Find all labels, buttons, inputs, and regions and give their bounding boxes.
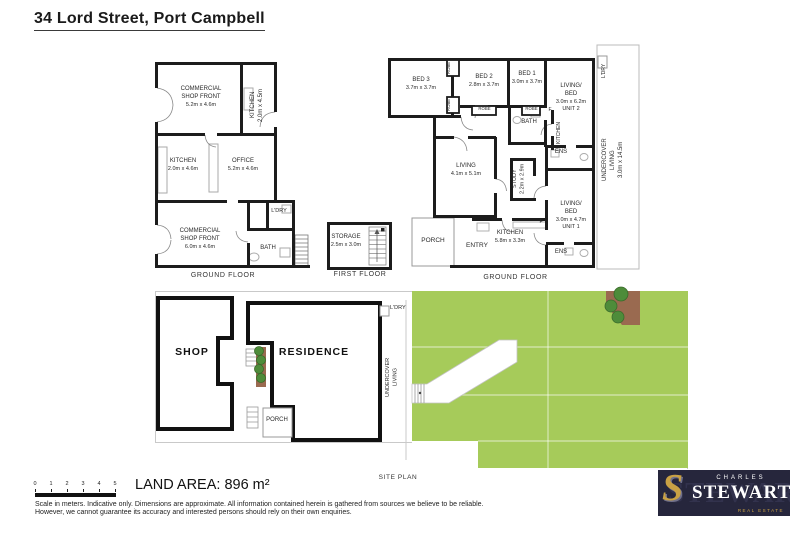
residence-floor-label: GROUND FLOOR <box>468 274 563 281</box>
room-robe-b: ROBE <box>446 97 452 113</box>
land-area: LAND AREA: 896 m² <box>135 477 270 493</box>
room-porch-residence: PORCH <box>415 237 451 244</box>
room-undercover-living: UNDERCOVER LIVING 3.0m x 14.5m <box>601 118 625 202</box>
room-robe-a: ROBE <box>446 60 452 76</box>
room-kitchen-small: KITCHEN <box>556 117 563 149</box>
room-ldry-residence: L'DRY <box>601 58 608 84</box>
scale-tick-4: 4 <box>95 481 103 487</box>
room-living-bed-unit1: LIVING/ BED 3.0m x 4.7m UNIT 1 <box>547 201 595 231</box>
floorplan-sheet: 34 Lord Street, Port Campbell <box>0 0 800 533</box>
room-bath-residence: BATH <box>512 119 546 125</box>
agency-logo: STEWART S CHARLES STEWART REAL ESTATE <box>658 470 790 516</box>
room-storage: STORAGE 2.5m x 3.0m <box>325 234 367 249</box>
room-bath-shop: BATH <box>248 245 288 251</box>
room-bed2: BED 2 2.8m x 3.7m <box>459 74 509 89</box>
shop-floor-label: GROUND FLOOR <box>178 272 268 279</box>
room-commercial-shop-front-1: COMMERCIAL SHOP FRONT 5.2m x 4.6m <box>166 86 236 109</box>
room-living: LIVING 4.1m x 5.1m <box>438 163 494 178</box>
room-ens-a: ENS <box>548 149 574 155</box>
logo-stewart: STEWART <box>692 482 786 504</box>
room-ens-b: ENS <box>549 249 573 255</box>
site-shop-label: SHOP <box>160 346 224 358</box>
site-porch-label: PORCH <box>259 417 295 423</box>
room-kitchen-main: KITCHEN 5.8m x 3.3m <box>481 230 539 245</box>
site-plan-drawing <box>150 285 695 480</box>
logo-monogram: S <box>662 470 683 510</box>
room-kitchen-shop-upper: KITCHEN 2.0m x 4.5m <box>249 76 265 134</box>
room-kitchen-shop: KITCHEN 2.0m x 4.6m <box>156 158 210 173</box>
scale-tick-0: 0 <box>31 481 39 487</box>
room-bed3: BED 3 3.7m x 3.7m <box>395 77 447 92</box>
room-study: STUDY 2.2m x 2.9m <box>512 159 527 199</box>
page-title: 34 Lord Street, Port Campbell <box>34 10 265 31</box>
scale-bar: 0 1 2 3 4 5 <box>33 481 125 499</box>
fridge-label-a: F <box>546 107 554 113</box>
scale-tick-1: 1 <box>47 481 55 487</box>
site-residence-label: RESIDENCE <box>262 346 366 358</box>
scale-tick-2: 2 <box>63 481 71 487</box>
room-living-bed-unit2: LIVING/ BED 3.0m x 6.2m UNIT 2 <box>549 83 593 113</box>
site-undercover-label: UNDERCOVER LIVING <box>385 346 400 408</box>
room-commercial-shop-front-2: COMMERCIAL SHOP FRONT 6.0m x 4.6m <box>164 228 236 251</box>
fridge-label-b: F <box>537 219 545 225</box>
scale-bar-rule <box>35 493 116 497</box>
scale-tick-3: 3 <box>79 481 87 487</box>
disclaimer-line-2: However, we cannot guarantee its accurac… <box>35 509 655 517</box>
disclaimer-line-1: Scale in meters. Indicative only. Dimens… <box>35 501 655 509</box>
room-office: OFFICE 5.2m x 4.6m <box>212 158 274 173</box>
room-bed1: BED 1 3.0m x 3.7m <box>506 71 548 86</box>
site-plan-label: SITE PLAN <box>368 474 428 481</box>
logo-charles: CHARLES <box>698 475 784 481</box>
logo-real-estate: REAL ESTATE <box>738 508 784 513</box>
site-ldry-label: L'DRY <box>390 305 414 311</box>
room-robe-d: ROBE <box>523 106 540 111</box>
room-robe-c: ROBE <box>473 106 496 111</box>
scale-tick-5: 5 <box>111 481 119 487</box>
room-ldry-shop: L'DRY <box>265 208 293 214</box>
